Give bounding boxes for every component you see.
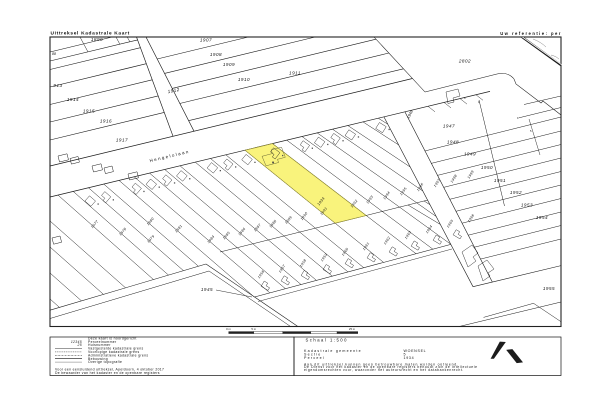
svg-text:1917: 1917 — [116, 138, 128, 143]
svg-text:1911: 1911 — [289, 71, 301, 76]
svg-text:5 m: 5 m — [251, 327, 256, 331]
svg-text:1910: 1910 — [238, 77, 250, 82]
svg-text:1890: 1890 — [91, 37, 103, 42]
svg-text:Perceel: Perceel — [304, 356, 325, 360]
svg-text:Overige topografie: Overige topografie — [88, 360, 122, 364]
svg-text:25: 25 — [77, 343, 82, 347]
svg-text:1945: 1945 — [201, 287, 213, 292]
svg-text:1914: 1914 — [67, 97, 79, 102]
svg-text:1955: 1955 — [543, 286, 555, 291]
svg-text:0 m: 0 m — [226, 327, 231, 331]
svg-text:1908: 1908 — [210, 52, 222, 57]
svg-text:1916: 1916 — [100, 119, 112, 124]
svg-text:2802: 2802 — [458, 59, 471, 64]
svg-text:1951: 1951 — [494, 178, 506, 183]
svg-text:Uw referentie: per: Uw referentie: per — [500, 31, 562, 36]
svg-text:eigendomsrechten voor, waarond: eigendomsrechten voor, waaronder het aut… — [304, 368, 464, 372]
svg-text:1907: 1907 — [200, 38, 212, 43]
svg-text:88: 88 — [52, 52, 56, 56]
svg-text:25 m: 25 m — [349, 327, 356, 331]
svg-text:1953: 1953 — [521, 203, 533, 208]
svg-text:1947: 1947 — [443, 124, 455, 129]
svg-text:1954: 1954 — [536, 215, 548, 220]
svg-text:1934: 1934 — [404, 356, 415, 360]
svg-text:Uittreksel Kadastrale Kaart: Uittreksel Kadastrale Kaart — [51, 30, 130, 36]
svg-text:1909: 1909 — [223, 62, 235, 67]
svg-text:1948: 1948 — [447, 140, 459, 145]
svg-text:1915: 1915 — [83, 109, 95, 114]
svg-text:Schaal 1:500: Schaal 1:500 — [306, 338, 348, 343]
svg-text:1950: 1950 — [481, 165, 493, 170]
svg-text:913: 913 — [53, 83, 62, 88]
svg-text:De bewaarder van het kadaster: De bewaarder van het kadaster en de open… — [55, 371, 160, 375]
svg-text:1949: 1949 — [464, 152, 476, 157]
svg-text:1952: 1952 — [510, 190, 522, 195]
svg-text:WOENSEL: WOENSEL — [404, 349, 427, 353]
